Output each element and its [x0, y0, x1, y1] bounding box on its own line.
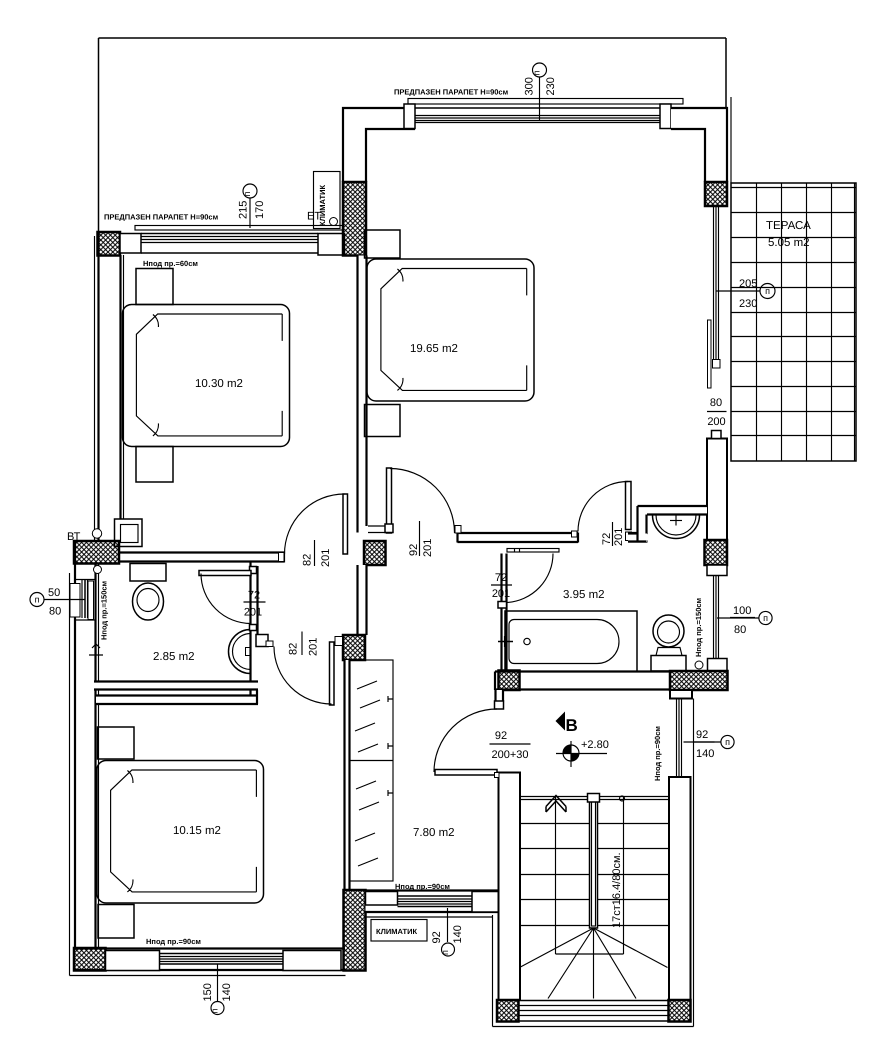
svg-text:140: 140 [452, 925, 464, 943]
svg-text:Нпод пр.=90см: Нпод пр.=90см [395, 882, 450, 891]
svg-text:17ст16.4/80см.: 17ст16.4/80см. [611, 852, 623, 928]
svg-text:215: 215 [238, 201, 250, 219]
svg-text:72: 72 [248, 590, 260, 602]
svg-text:КЛИМАТИК: КЛИМАТИК [376, 927, 417, 936]
svg-text:201: 201 [244, 607, 262, 619]
svg-text:5.05 m2: 5.05 m2 [768, 237, 810, 249]
svg-text:230: 230 [739, 298, 757, 310]
svg-text:140: 140 [221, 983, 233, 1001]
svg-text:92: 92 [408, 544, 420, 556]
svg-text:19.65 m2: 19.65 m2 [410, 343, 458, 355]
svg-text:+2.80: +2.80 [581, 739, 609, 751]
svg-text:201: 201 [422, 539, 434, 557]
svg-text:п: п [532, 70, 542, 75]
svg-text:10.15 m2: 10.15 m2 [173, 825, 221, 837]
svg-text:201: 201 [492, 588, 510, 600]
svg-text:Нпод пр.=150см: Нпод пр.=150см [100, 580, 109, 640]
svg-text:Нпод пр.=60см: Нпод пр.=60см [143, 259, 198, 268]
svg-text:201: 201 [320, 549, 332, 567]
svg-text:200+30: 200+30 [491, 749, 528, 761]
svg-text:300: 300 [524, 77, 536, 95]
svg-text:п: п [725, 737, 730, 747]
svg-text:Нпод пр.=90см: Нпод пр.=90см [653, 726, 662, 781]
svg-text:92: 92 [696, 729, 708, 741]
svg-text:205: 205 [739, 278, 757, 290]
svg-text:3.95 m2: 3.95 m2 [563, 589, 605, 601]
svg-text:ПРЕДПАЗЕН ПАРАПЕТ Н=90см: ПРЕДПАЗЕН ПАРАПЕТ Н=90см [104, 213, 219, 222]
svg-text:80: 80 [734, 624, 746, 636]
svg-text:50: 50 [48, 587, 60, 599]
svg-text:ЕТ: ЕТ [307, 211, 321, 223]
svg-text:82: 82 [288, 643, 300, 655]
svg-text:п: п [763, 613, 768, 623]
svg-text:92: 92 [495, 730, 507, 742]
svg-text:201: 201 [308, 638, 320, 656]
svg-text:82: 82 [302, 554, 314, 566]
svg-text:Нпод пр.=90см: Нпод пр.=90см [146, 937, 201, 946]
svg-text:170: 170 [254, 201, 266, 219]
svg-text:B: B [566, 716, 578, 735]
svg-text:ТЕРАСА: ТЕРАСА [766, 220, 811, 232]
svg-text:10.30 m2: 10.30 m2 [195, 378, 243, 390]
svg-text:201: 201 [613, 528, 625, 546]
svg-text:100: 100 [733, 605, 751, 617]
svg-text:200: 200 [707, 416, 725, 428]
svg-text:7.80 m2: 7.80 m2 [413, 827, 455, 839]
svg-text:ПРЕДПАЗЕН ПАРАПЕТ Н=90см: ПРЕДПАЗЕН ПАРАПЕТ Н=90см [394, 88, 509, 97]
svg-text:72: 72 [601, 533, 613, 545]
svg-text:150: 150 [202, 983, 214, 1001]
svg-text:п: п [210, 1008, 220, 1013]
svg-text:140: 140 [696, 748, 714, 760]
svg-text:Нпод пр.=150см: Нпод пр.=150см [694, 597, 703, 657]
svg-text:80: 80 [49, 606, 61, 618]
svg-text:230: 230 [545, 77, 557, 95]
svg-text:72: 72 [495, 572, 507, 584]
svg-text:п: п [242, 191, 252, 196]
svg-text:п: п [440, 950, 450, 955]
svg-text:2.85 m2: 2.85 m2 [153, 651, 195, 663]
svg-text:п: п [35, 595, 40, 605]
svg-text:п: п [765, 286, 770, 296]
svg-text:80: 80 [710, 397, 722, 409]
svg-text:92: 92 [431, 931, 443, 943]
